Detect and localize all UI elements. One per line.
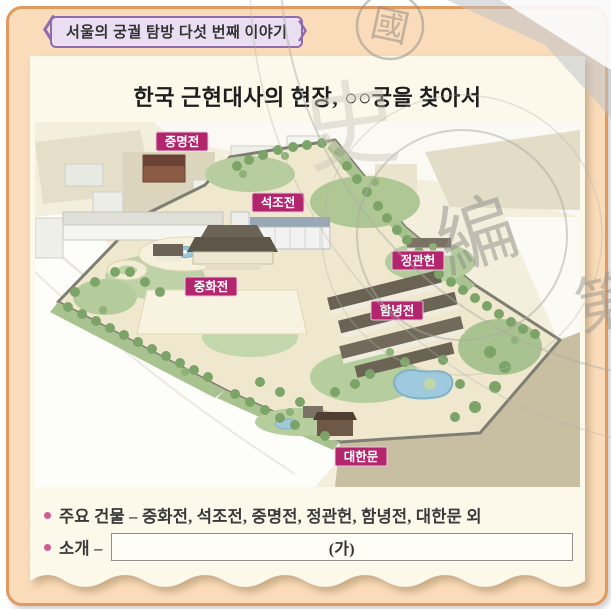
main-buildings-text: 주요 건물 – 중화전, 석조전, 중명전, 정관헌, 함녕전, 대한문 외: [59, 503, 482, 527]
intro-row: 소개 – (가): [42, 533, 573, 561]
intro-answer-box: (가): [111, 533, 573, 561]
kidney-pond: [394, 370, 452, 398]
notes-section: 주요 건물 – 중화전, 석조전, 중명전, 정관헌, 함녕전, 대한문 외 소…: [30, 487, 585, 561]
header-tab: 〈 서울의 궁궐 탐방 다섯 번째 이야기 〉: [26, 17, 319, 47]
label-jeonggwanheon: 정관헌: [392, 251, 444, 270]
west-colonnade-building: [63, 212, 223, 240]
label-seokjojeon: 석조전: [252, 193, 304, 212]
daehanmun-gate: [313, 412, 357, 440]
intro-label: 소개 –: [59, 535, 103, 559]
label-junghwajeon: 중화전: [185, 277, 237, 296]
svg-text:정관헌: 정관헌: [401, 253, 436, 268]
paper-card: 한국 근현대사의 현장, ○○궁을 찾아서: [30, 56, 585, 597]
svg-text:중명전: 중명전: [165, 134, 200, 149]
main-buildings-row: 주요 건물 – 중화전, 석조전, 중명전, 정관헌, 함녕전, 대한문 외: [42, 503, 573, 527]
intro-answer-placeholder: (가): [329, 535, 355, 559]
svg-text:함녕전: 함녕전: [380, 303, 415, 318]
bullet-dot-icon: [44, 512, 51, 519]
label-jungmyeongjeon: 중명전: [156, 132, 208, 151]
paper-wave-edge: [30, 571, 585, 597]
chevron-right-icon: 〉: [297, 18, 319, 46]
label-daehanmun: 대한문: [335, 447, 387, 466]
label-hamnyeongjeon: 함녕전: [371, 301, 423, 320]
svg-text:대한문: 대한문: [344, 449, 379, 464]
worksheet-page: 〈 서울의 궁궐 탐방 다섯 번째 이야기 〉 한국 근현대사의 현장, ○○궁…: [0, 0, 611, 609]
palace-map: 중명전 석조전 정관헌 중화전: [35, 122, 580, 487]
svg-text:중화전: 중화전: [194, 279, 229, 294]
deoksugung-map-illustration: 중명전 석조전 정관헌 중화전: [35, 122, 580, 487]
page-title: 한국 근현대사의 현장, ○○궁을 찾아서: [30, 56, 585, 112]
jungmyeongjeon-building: [143, 155, 185, 182]
header-tab-label: 서울의 궁궐 탐방 다섯 번째 이야기: [50, 16, 303, 48]
svg-text:석조전: 석조전: [261, 195, 296, 210]
bullet-dot-icon: [44, 544, 51, 551]
